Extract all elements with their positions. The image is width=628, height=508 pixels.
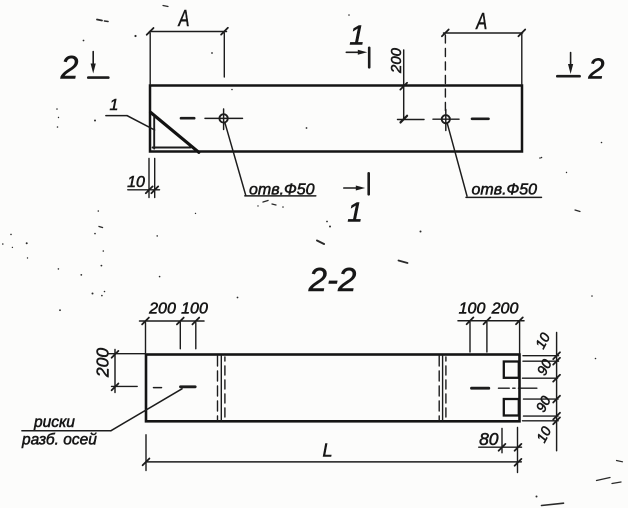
svg-text:100: 100 — [181, 301, 208, 318]
svg-text:A: A — [475, 8, 487, 34]
svg-text:90: 90 — [533, 356, 555, 377]
svg-text:200: 200 — [93, 348, 113, 378]
svg-text:200: 200 — [491, 301, 519, 318]
svg-text:1: 1 — [347, 197, 363, 228]
svg-text:отв.Ф50: отв.Ф50 — [249, 182, 315, 199]
svg-text:L: L — [322, 441, 332, 461]
svg-text:1: 1 — [110, 97, 119, 114]
svg-text:200: 200 — [388, 47, 405, 74]
svg-text:2: 2 — [587, 54, 604, 86]
svg-text:80: 80 — [479, 429, 499, 449]
svg-text:10: 10 — [533, 424, 555, 445]
svg-text:10: 10 — [532, 330, 554, 351]
svg-text:отв.Ф50: отв.Ф50 — [472, 182, 538, 199]
svg-text:2: 2 — [60, 50, 79, 86]
svg-text:100: 100 — [459, 301, 486, 318]
svg-text:90: 90 — [532, 393, 554, 414]
svg-text:2-2: 2-2 — [308, 261, 357, 298]
svg-text:A: A — [177, 5, 189, 31]
svg-text:разб. осей: разб. осей — [21, 432, 97, 449]
svg-text:риски: риски — [33, 414, 75, 431]
svg-text:1: 1 — [349, 20, 365, 51]
svg-text:200: 200 — [148, 301, 176, 318]
svg-text:10: 10 — [127, 174, 145, 191]
